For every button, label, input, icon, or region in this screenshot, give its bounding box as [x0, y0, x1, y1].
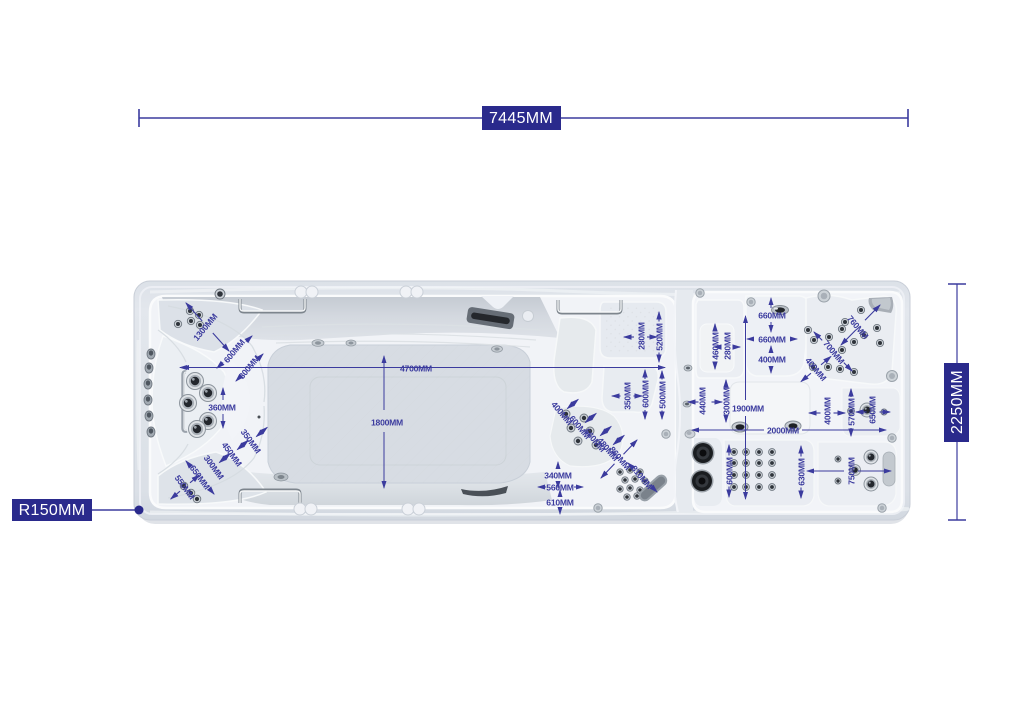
svg-text:4700MM: 4700MM	[400, 363, 432, 373]
svg-text:400MM: 400MM	[758, 354, 785, 364]
svg-text:600MM: 600MM	[724, 457, 734, 484]
svg-text:660MM: 660MM	[758, 310, 785, 320]
svg-text:460MM: 460MM	[710, 332, 720, 359]
svg-text:750MM: 750MM	[846, 457, 856, 484]
svg-text:7445MM: 7445MM	[489, 110, 553, 127]
svg-text:520MM: 520MM	[654, 323, 664, 350]
svg-text:600MM: 600MM	[640, 380, 650, 407]
svg-text:660MM: 660MM	[758, 334, 785, 344]
svg-text:2250MM: 2250MM	[949, 370, 966, 434]
svg-text:570MM: 570MM	[846, 398, 856, 425]
svg-text:400MM: 400MM	[822, 397, 832, 424]
svg-text:2000MM: 2000MM	[767, 425, 799, 435]
svg-text:350MM: 350MM	[622, 382, 632, 409]
svg-text:1800MM: 1800MM	[371, 417, 403, 427]
svg-text:280MM: 280MM	[636, 322, 646, 349]
svg-text:300MM: 300MM	[721, 387, 731, 414]
svg-text:340MM: 340MM	[544, 470, 571, 480]
svg-text:610MM: 610MM	[546, 497, 573, 507]
svg-text:280MM: 280MM	[722, 332, 732, 359]
svg-text:500MM: 500MM	[657, 381, 667, 408]
svg-text:360MM: 360MM	[208, 402, 235, 412]
svg-text:R150MM: R150MM	[19, 502, 86, 519]
svg-text:650MM: 650MM	[867, 396, 877, 423]
svg-text:630MM: 630MM	[796, 458, 806, 485]
svg-text:1900MM: 1900MM	[732, 403, 764, 413]
svg-text:440MM: 440MM	[697, 387, 707, 414]
